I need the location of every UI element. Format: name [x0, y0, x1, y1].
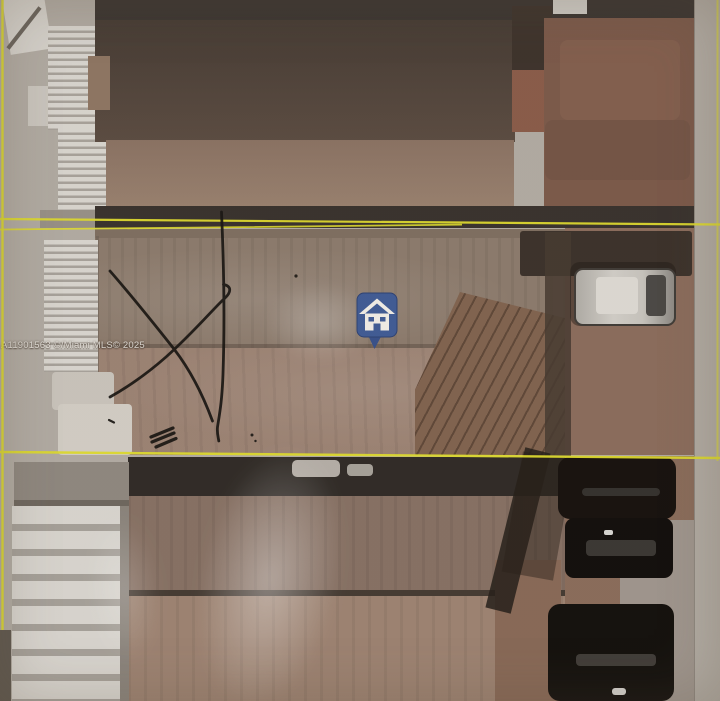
red-roof-mottle-1: [560, 40, 680, 120]
vertical-shadow-strip-mid: [545, 232, 571, 458]
black-car-3-reflection: [612, 688, 626, 695]
black-car-3-window: [576, 654, 656, 666]
home-marker-icon: [357, 293, 397, 349]
house-window-right: [380, 317, 386, 322]
glare-bottom-left: [82, 512, 167, 668]
silver-car-roof-highlight: [596, 277, 638, 314]
white-bit-top-right: [553, 0, 587, 14]
mls-watermark: A11901563 ©/Miami MLS© 2025: [1, 340, 145, 351]
neighbor-top-roof-lower-slope: [106, 140, 514, 212]
house-window-left: [369, 317, 375, 322]
neighbor-top-roof-chimney-patch: [88, 56, 110, 110]
house-door: [374, 324, 381, 331]
shadow-band-top: [95, 206, 695, 228]
white-bit-left: [28, 86, 48, 126]
black-car-1-highlight: [582, 488, 660, 496]
light-patio-blob-2: [58, 404, 132, 455]
silver-car-windshield: [646, 275, 666, 316]
concrete-strip-right: [694, 0, 720, 701]
black-car-2-window: [586, 540, 656, 556]
black-car-2-reflection: [604, 530, 613, 535]
corrugated-awning-mid: [44, 240, 98, 372]
red-patch-top-right: [512, 70, 544, 132]
neighbor-top-dark-roof-upper: [95, 16, 515, 142]
aerial-photo: A11901563 ©/Miami MLS© 2025: [0, 0, 720, 701]
top-dark-strip: [95, 0, 695, 20]
home-location-marker: [353, 289, 401, 353]
shadow-under-awning: [40, 210, 102, 228]
black-car-3: [548, 604, 674, 701]
bottom-left-dark-edge: [0, 630, 11, 701]
red-roof-mottle-2: [545, 120, 690, 180]
